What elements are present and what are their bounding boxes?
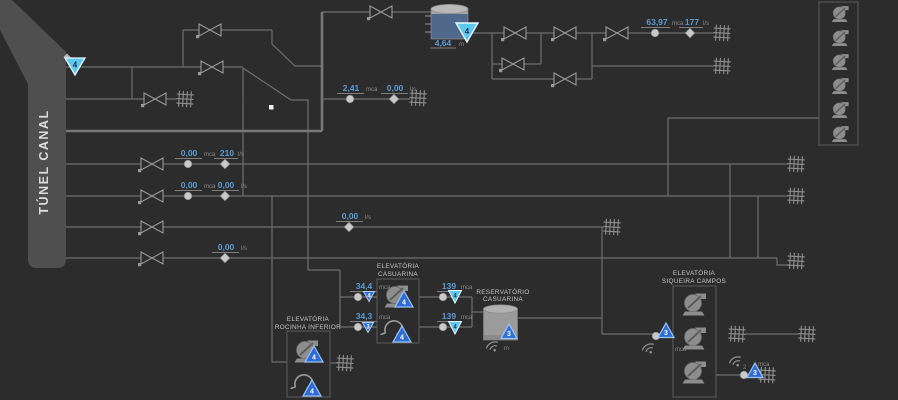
junction-dot bbox=[269, 105, 274, 110]
sensor-241[interactable]: 2,41 mca bbox=[337, 83, 378, 103]
tunnel-level-badge: 4 bbox=[73, 61, 78, 70]
sensor-value: 0,00 bbox=[342, 211, 359, 221]
pressure-sensor-icon bbox=[439, 293, 447, 301]
pump-stack bbox=[819, 2, 858, 145]
pressure-sensor-icon bbox=[354, 323, 362, 331]
tunnel-canal-title: TÚNEL CANAL bbox=[36, 109, 51, 214]
siqueira-signal-count: 2 bbox=[743, 365, 747, 371]
sensor-rowB-f[interactable]: 0,00 l/s bbox=[212, 180, 247, 201]
valve-icon[interactable] bbox=[138, 252, 163, 266]
sensor-value: 210 bbox=[220, 148, 234, 158]
schematic-canvas: TÚNEL CANAL bbox=[0, 0, 898, 400]
sensor-value: 34,4 bbox=[356, 281, 373, 291]
sensor-value: 63,97 bbox=[646, 17, 668, 27]
signal-icon bbox=[485, 340, 501, 354]
pump-icon[interactable] bbox=[832, 6, 849, 22]
drain-hatch-icon bbox=[787, 156, 805, 173]
scada-screen: TÚNEL CANAL bbox=[0, 0, 898, 400]
sensor-value: 139 bbox=[442, 281, 456, 291]
valve-icon[interactable] bbox=[138, 221, 163, 235]
sensor-unit: l/s bbox=[703, 21, 709, 27]
pump-icon[interactable] bbox=[832, 78, 849, 94]
flow-sensor-icon bbox=[344, 222, 354, 232]
rocinha-label-2: ROCINHA INFERIOR bbox=[275, 324, 341, 331]
sensor-unit: mca bbox=[204, 152, 216, 158]
sensor-value: 0,00 bbox=[181, 180, 198, 190]
sensor-value: 0,00 bbox=[218, 242, 235, 252]
flow-sensor-icon bbox=[220, 191, 230, 201]
tank-level-value: 4,64 bbox=[435, 38, 452, 48]
pressure-sensor-icon bbox=[184, 160, 192, 168]
sensor-unit: mca bbox=[366, 87, 378, 93]
pump-icon[interactable] bbox=[832, 126, 849, 142]
tunnel-canal-band: TÚNEL CANAL bbox=[0, 0, 66, 268]
valve-icon[interactable] bbox=[138, 190, 163, 204]
sensor-value: 0,00 bbox=[218, 180, 235, 190]
pump-stack-box bbox=[819, 2, 858, 145]
valve-icon[interactable] bbox=[501, 27, 526, 41]
sensor-unit: l/s bbox=[241, 246, 247, 252]
valve-icon[interactable] bbox=[141, 93, 166, 107]
sensor-rowB-p[interactable]: 0,00 mca bbox=[175, 180, 216, 200]
flow-sensor-icon bbox=[685, 28, 695, 38]
flow-sensor-icon bbox=[220, 253, 230, 263]
sensor-6397[interactable]: 63,97 mca bbox=[641, 17, 684, 37]
signal-icon bbox=[641, 342, 657, 356]
siqueira-inlet-unit: mca bbox=[675, 347, 687, 353]
sensor-value: 0,00 bbox=[387, 83, 404, 93]
siqueira-label-2: SIQUEIRA CAMPOS bbox=[662, 278, 726, 285]
pump-badge: 4 bbox=[312, 355, 316, 362]
pressure-sensor-icon bbox=[354, 293, 362, 301]
pump-badge: 4 bbox=[400, 335, 404, 342]
drain-hatch-icon bbox=[787, 188, 805, 205]
valve-icon[interactable] bbox=[196, 24, 221, 38]
tank-level-unit: m bbox=[459, 42, 464, 48]
valve-icon[interactable] bbox=[551, 27, 576, 41]
sensor-unit: l/s bbox=[365, 215, 371, 221]
siqueira-inlet-badge[interactable]: 3 bbox=[658, 323, 674, 338]
sensor-value: 2,41 bbox=[343, 83, 360, 93]
drain-hatch-icon bbox=[713, 58, 731, 75]
sensor-177[interactable]: 177 l/s bbox=[679, 17, 709, 38]
casuarina-pump2-badge[interactable]: 4 bbox=[393, 326, 411, 342]
drain-hatch-icon bbox=[336, 355, 354, 372]
sensor-unit: l/s bbox=[241, 184, 247, 190]
sensor-unit: mca bbox=[379, 315, 391, 321]
valve-icon[interactable] bbox=[551, 73, 576, 87]
sensor-unit: mca bbox=[204, 184, 216, 190]
signal-icon bbox=[728, 355, 744, 369]
siqueira-outlet-unit: mca bbox=[758, 362, 770, 368]
valve-icon[interactable] bbox=[138, 158, 163, 172]
valve-icon[interactable] bbox=[603, 27, 628, 41]
sensor-rowD-f[interactable]: 0,00 l/s bbox=[212, 242, 247, 263]
pressure-sensor-icon bbox=[651, 29, 659, 37]
pump-icon[interactable] bbox=[832, 102, 849, 118]
sensor-value: 139 bbox=[442, 311, 456, 321]
alarm-badge: 3 bbox=[753, 370, 757, 377]
sensor-unit: mca bbox=[461, 315, 473, 321]
sensor-unit: l/s bbox=[410, 87, 416, 93]
pump-icon[interactable] bbox=[832, 30, 849, 46]
reservoir-unit: m bbox=[504, 346, 509, 352]
sensor-unit: mca bbox=[461, 285, 473, 291]
sensor-value: 0,00 bbox=[181, 148, 198, 158]
pump-badge: 4 bbox=[310, 389, 314, 396]
flow-sensor-icon bbox=[220, 159, 230, 169]
reservoir-badge: 3 bbox=[507, 331, 511, 338]
drain-hatch-icon bbox=[176, 91, 194, 108]
alarm-badge: 3 bbox=[664, 330, 668, 337]
drain-hatch-icon bbox=[798, 326, 816, 343]
siqueira-label-1: ELEVATÓRIA bbox=[673, 268, 716, 277]
reservatorio-label-1: RESERVATÓRIO bbox=[476, 287, 529, 296]
badge-139b[interactable]: 4 bbox=[449, 322, 462, 335]
sensor-rowA-f[interactable]: 210 l/s bbox=[214, 148, 244, 169]
drain-hatch-icon bbox=[713, 25, 731, 42]
sensor-value: 34,3 bbox=[356, 311, 373, 321]
sensor-unit: l/s bbox=[238, 152, 244, 158]
flow-sensor-icon bbox=[389, 94, 399, 104]
sensor-value: 177 bbox=[685, 17, 699, 27]
rocinha-label-1: ELEVATÓRIA bbox=[287, 314, 330, 323]
casuarina-label-2: CASUARINA bbox=[378, 271, 418, 278]
pressure-sensor-icon bbox=[439, 323, 447, 331]
sensor-rowA-p[interactable]: 0,00 mca bbox=[175, 148, 216, 168]
valve-icon[interactable] bbox=[499, 58, 524, 72]
pump-icon[interactable] bbox=[683, 294, 707, 316]
drain-hatch-icon bbox=[603, 219, 621, 236]
pump-icon[interactable] bbox=[683, 362, 707, 384]
tank-level-badge: 4 bbox=[465, 27, 470, 36]
reservatorio-label-2: CASUARINA bbox=[483, 296, 523, 303]
valve-icon[interactable] bbox=[198, 61, 223, 75]
sensor-unit: mca bbox=[672, 21, 684, 27]
valve-icon[interactable] bbox=[367, 6, 392, 20]
pump-icon[interactable] bbox=[832, 54, 849, 70]
drain-hatch-icon bbox=[728, 326, 746, 343]
drain-hatch-icon bbox=[787, 253, 805, 270]
pressure-sensor-icon bbox=[184, 192, 192, 200]
sensor-rowC-f[interactable]: 0,00 l/s bbox=[336, 211, 371, 232]
pump-badge: 4 bbox=[402, 300, 406, 307]
casuarina-label-1: ELEVATÓRIA bbox=[377, 261, 420, 270]
rocinha-pump2-badge[interactable]: 4 bbox=[303, 380, 321, 396]
pressure-sensor-icon bbox=[346, 95, 354, 103]
